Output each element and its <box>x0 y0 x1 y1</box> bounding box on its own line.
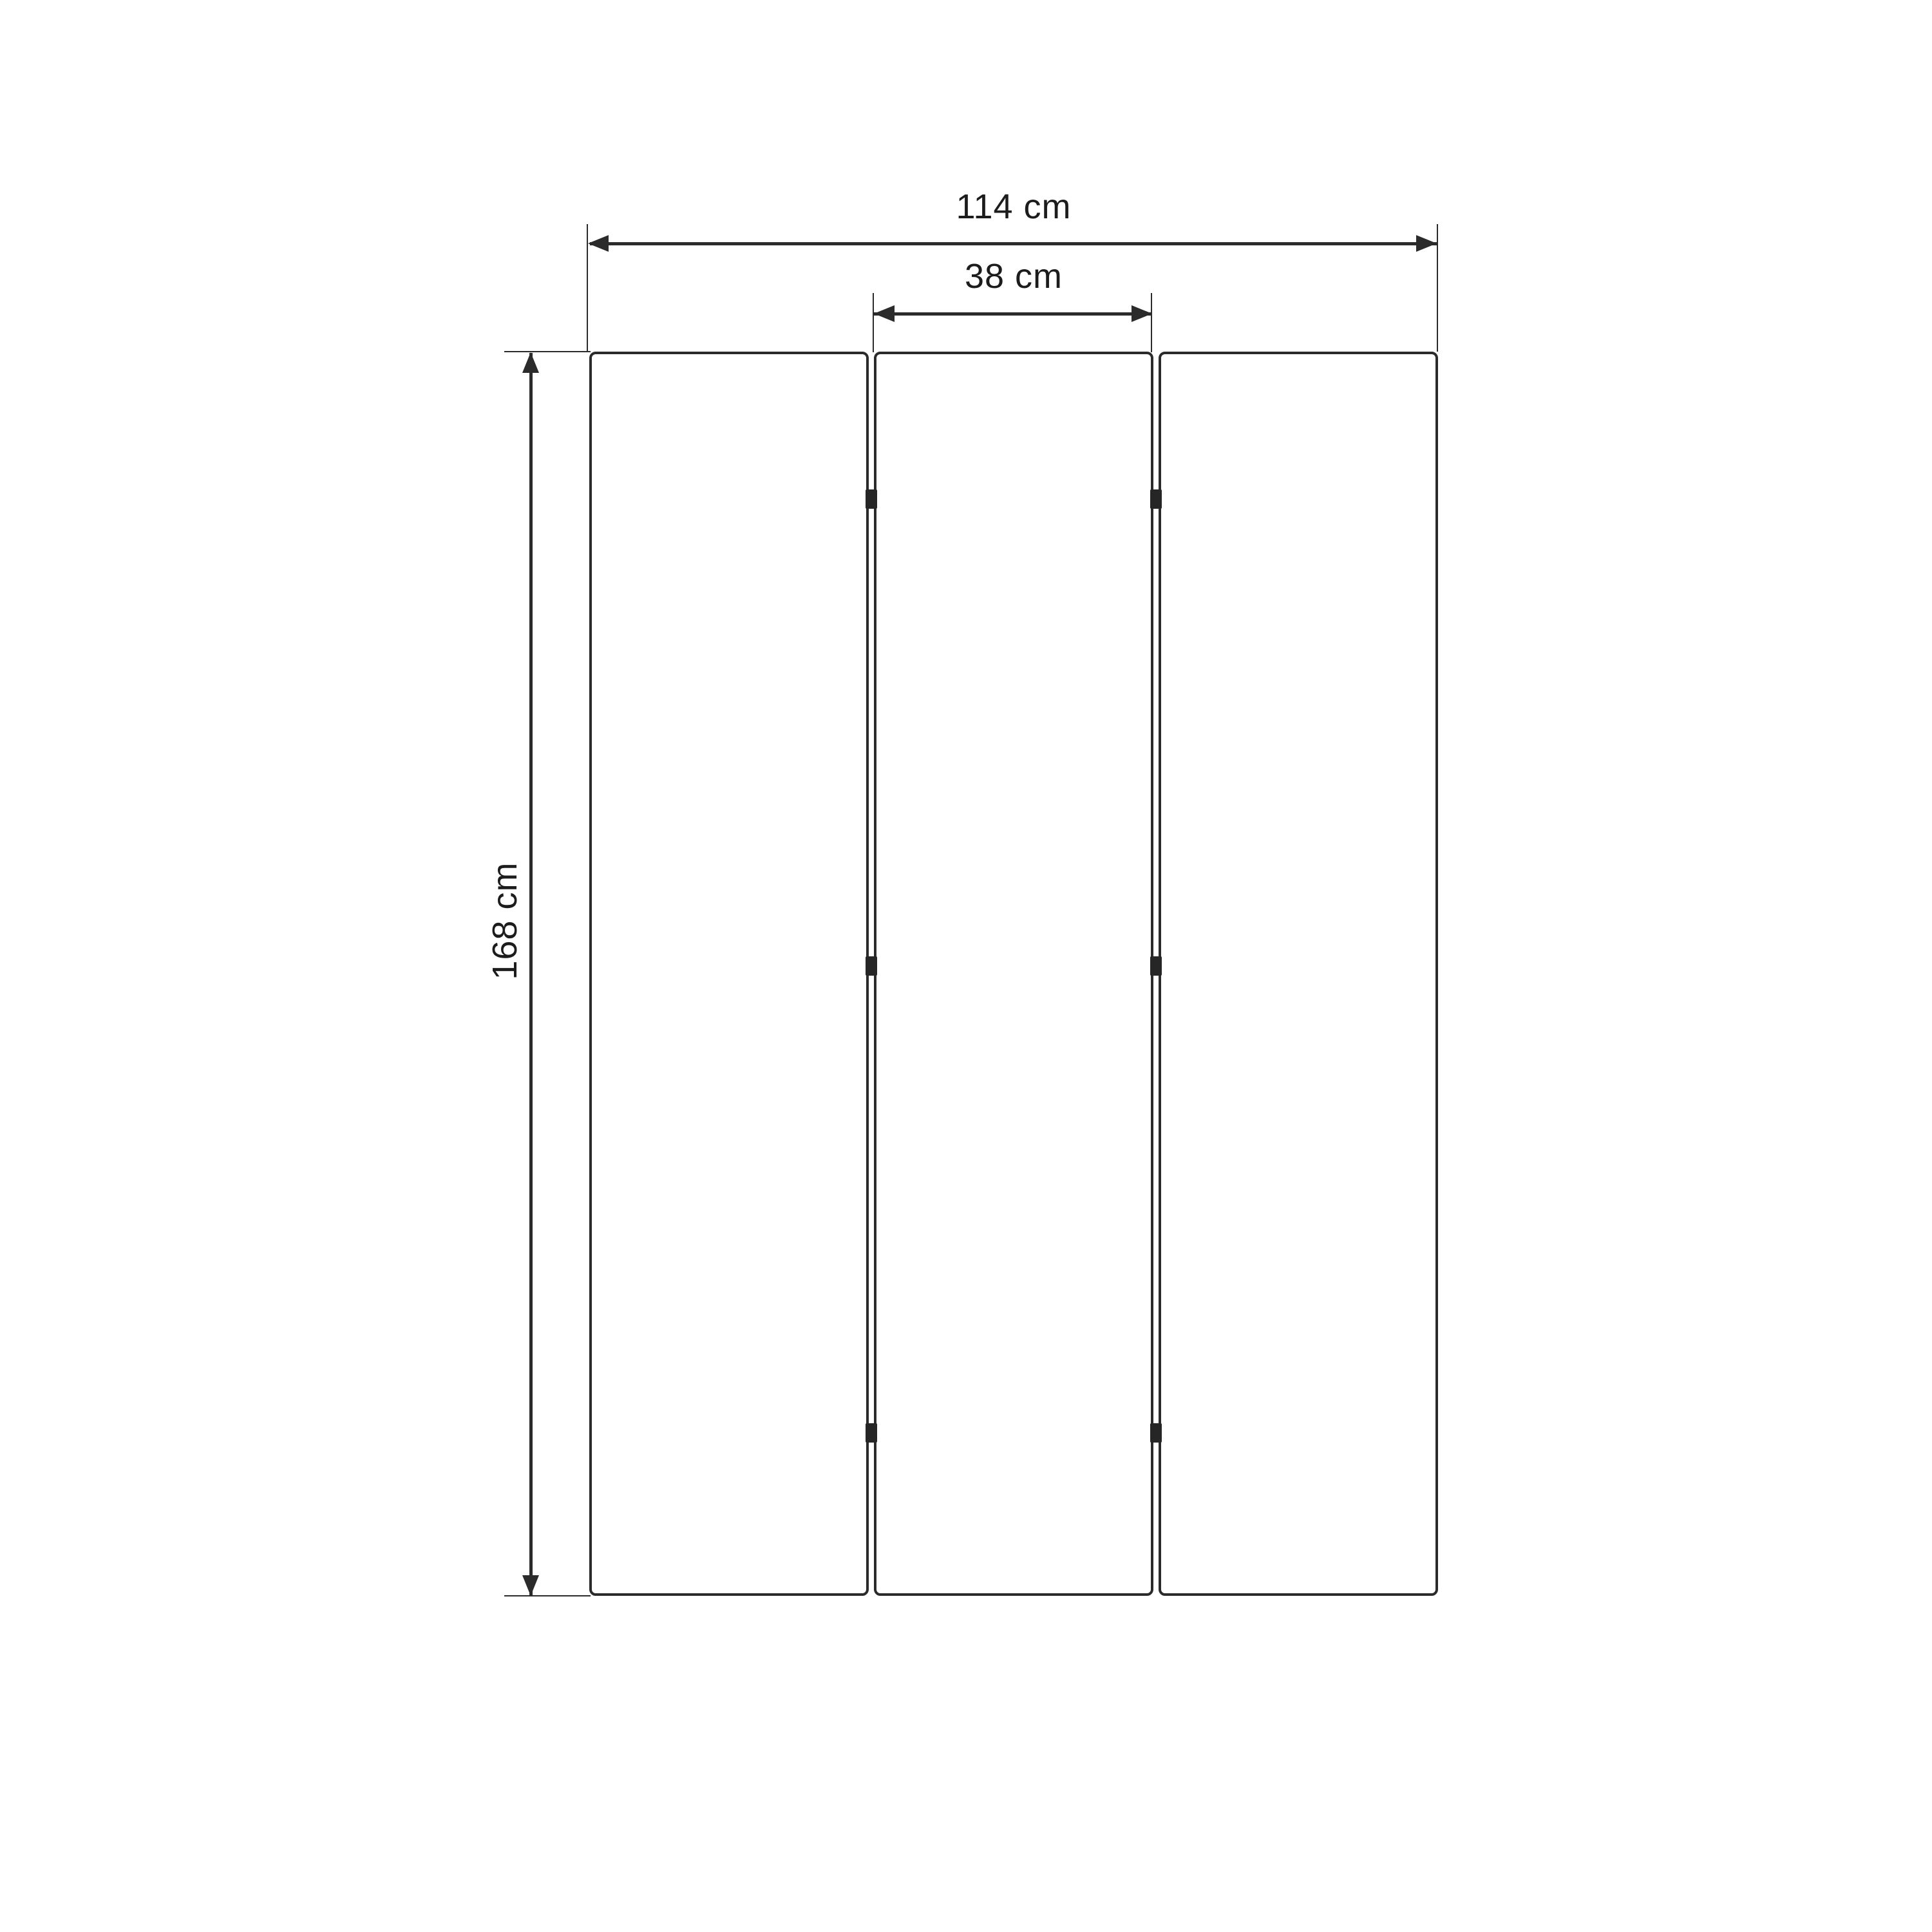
arrow-left-icon <box>588 235 609 252</box>
hinge-mark <box>1150 1423 1162 1443</box>
height-dimension-line <box>529 353 533 1596</box>
panel-left <box>589 352 869 1596</box>
total-width-dimension-label: 114 cm <box>589 189 1438 224</box>
hinge-mark <box>866 956 877 976</box>
hinge-mark <box>866 489 877 509</box>
extension-line-panel-width-left <box>873 293 874 352</box>
panel-width-dimension-label: 38 cm <box>874 259 1153 294</box>
extension-line-total-width-right <box>1437 224 1438 352</box>
extension-line-panel-width-right <box>1151 293 1152 352</box>
hinge-mark <box>1150 956 1162 976</box>
extension-line-height-bottom <box>504 1595 591 1596</box>
arrow-left-icon <box>874 305 895 322</box>
arrow-right-icon <box>1416 235 1437 252</box>
arrow-down-icon <box>522 1575 539 1596</box>
arrow-up-icon <box>522 352 539 373</box>
extension-line-height-top <box>504 351 591 352</box>
drawing-canvas: 114 cm 38 cm 168 cm <box>0 0 1932 1932</box>
panel-right <box>1159 352 1438 1596</box>
hinge-mark <box>1150 489 1162 509</box>
arrow-right-icon <box>1132 305 1152 322</box>
total-width-dimension-line <box>590 242 1437 245</box>
panel-width-dimension-line <box>874 312 1152 316</box>
panel-middle <box>874 352 1153 1596</box>
height-dimension-label: 168 cm <box>488 840 522 1001</box>
hinge-mark <box>866 1423 877 1443</box>
